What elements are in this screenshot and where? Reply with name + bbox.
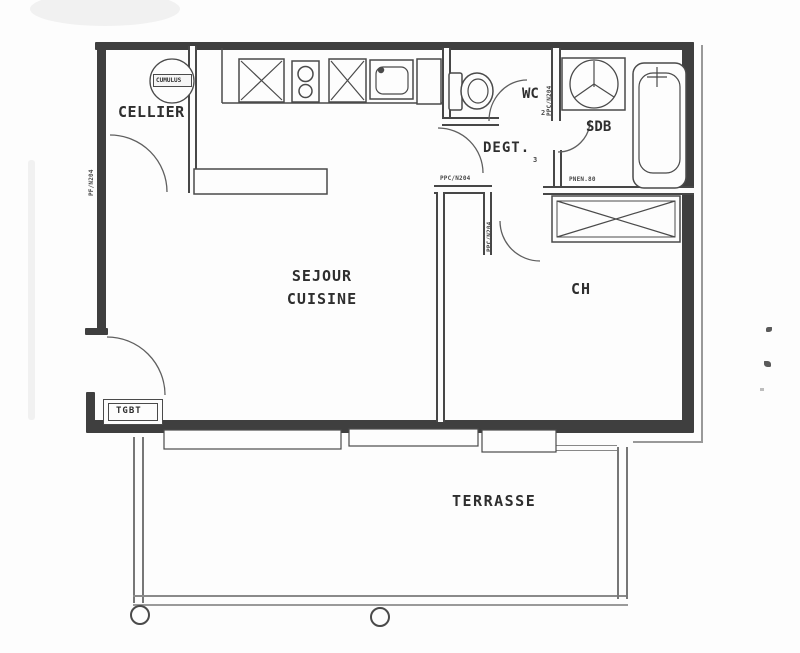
room-label-sejour: SEJOUR CUISINE [270, 265, 374, 311]
fridge-outline [417, 59, 441, 104]
electrical-panel-label: TGBT [116, 406, 142, 416]
kitchen-bar [194, 169, 327, 194]
terrace-post-1 [131, 606, 149, 624]
toilet-tank [449, 73, 462, 110]
window-sejour-2 [349, 429, 478, 446]
room-label-cellier: CELLIER [118, 103, 185, 121]
room-label-sdb: SDB [586, 119, 611, 135]
sink-faucet [379, 68, 384, 73]
room-label-terrasse: TERRASSE [452, 492, 536, 510]
bathtub-inner [639, 73, 680, 173]
code-degt-door: PPC/N204 [486, 222, 493, 253]
door-arc-sejour-degt [438, 128, 483, 173]
water-heater-label: CUMULUS [156, 77, 181, 84]
code-degt-num: 3 [533, 156, 537, 164]
terrace-post-2 [371, 608, 389, 626]
code-wc-door: PPC/N204 [546, 86, 553, 117]
hob-burner-1 [298, 67, 313, 82]
door-arc-entry [107, 337, 165, 395]
door-arc-cellier [110, 135, 167, 192]
room-label-wc: WC [522, 86, 539, 102]
door-arc-ch [500, 221, 540, 261]
hob-burner-2 [299, 85, 312, 98]
code-wc-door-num: 2 [541, 109, 545, 117]
toilet-bowl-inner [468, 79, 488, 103]
fixtures-layer [0, 0, 800, 653]
room-label-ch: CH [571, 280, 591, 298]
room-label-sejour-line1: SEJOUR [270, 265, 374, 288]
room-label-degt: DEGT. [483, 140, 530, 156]
room-label-sejour-line2: CUISINE [270, 288, 374, 311]
code-left-window: PF/N204 [88, 169, 95, 196]
window-sejour-1 [164, 430, 341, 449]
code-sejour-door: PPC/N204 [440, 175, 471, 182]
floor-plan: TGBT CUMULUS CELLIER WC SDB DEGT. SEJOUR… [0, 0, 800, 653]
code-sdb-door: PNEN.80 [569, 176, 596, 183]
window-ch [482, 430, 556, 452]
